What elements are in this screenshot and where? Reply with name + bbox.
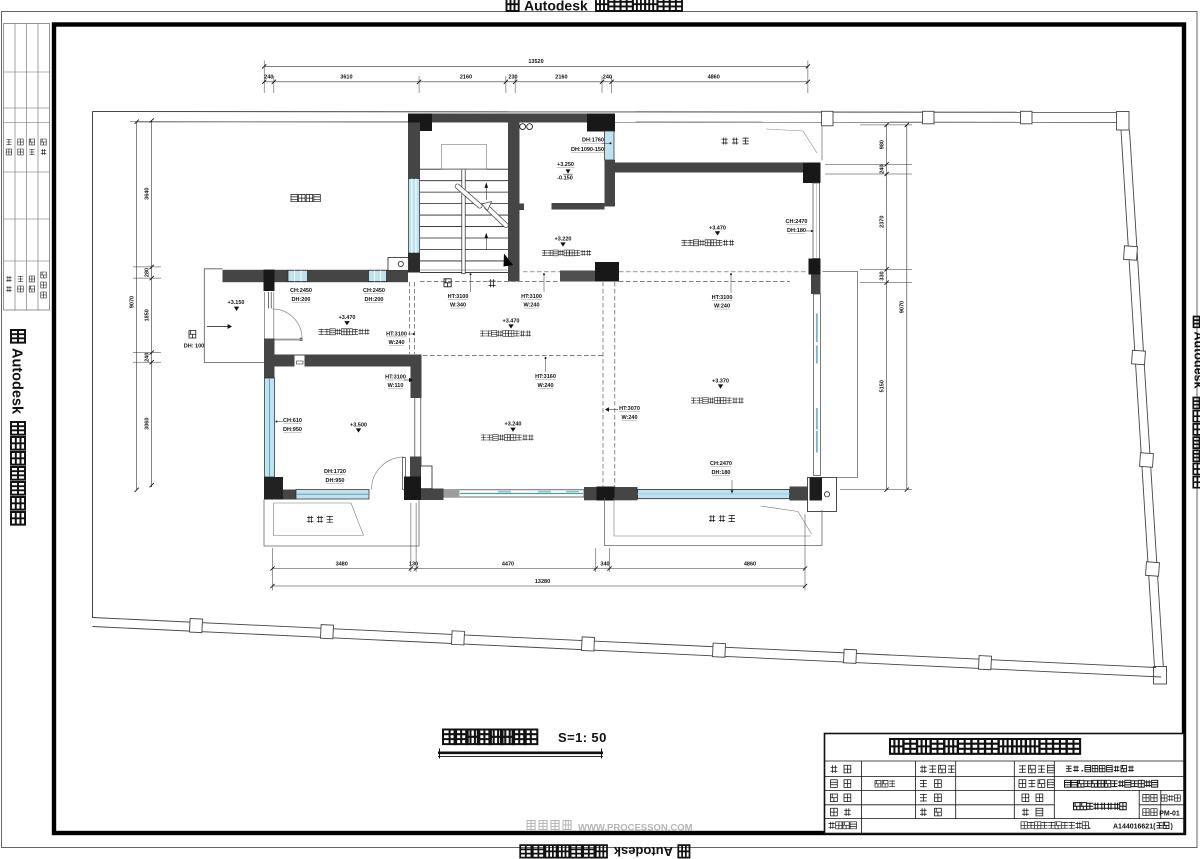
svg-text:DH: 100: DH: 100 xyxy=(184,343,204,349)
svg-text:W:240: W:240 xyxy=(537,383,553,389)
svg-text:240: 240 xyxy=(603,74,612,80)
svg-text:4860: 4860 xyxy=(744,562,756,568)
svg-text:DH:200: DH:200 xyxy=(365,297,384,303)
svg-text:Autodesk: Autodesk xyxy=(524,0,588,14)
svg-text:W:240: W:240 xyxy=(621,415,637,421)
svg-text:13280: 13280 xyxy=(535,579,550,585)
svg-text:CH:2470: CH:2470 xyxy=(710,461,732,467)
svg-text:+3.220: +3.220 xyxy=(555,237,572,243)
svg-text:2160: 2160 xyxy=(555,74,567,80)
svg-text:W:240: W:240 xyxy=(388,340,404,346)
svg-text:2370: 2370 xyxy=(879,216,885,228)
svg-text:HT:3100: HT:3100 xyxy=(385,374,406,380)
svg-text:340: 340 xyxy=(600,562,609,568)
svg-text:HT:3100: HT:3100 xyxy=(712,295,733,301)
svg-text:1850: 1850 xyxy=(145,309,151,321)
svg-text:9070: 9070 xyxy=(900,301,906,313)
svg-text:3060: 3060 xyxy=(145,418,151,430)
svg-text:4860: 4860 xyxy=(708,74,720,80)
svg-text:CH:2470: CH:2470 xyxy=(785,219,807,225)
svg-text:HT:3070: HT:3070 xyxy=(619,406,640,412)
svg-text:+3.470: +3.470 xyxy=(339,315,356,321)
svg-text:280: 280 xyxy=(145,268,151,277)
svg-text:PM-01: PM-01 xyxy=(1159,810,1180,817)
svg-text:DH:1720: DH:1720 xyxy=(324,469,346,475)
svg-text:DH:950: DH:950 xyxy=(326,478,345,484)
svg-text:HT:3100: HT:3100 xyxy=(448,294,469,300)
svg-text:HT:3160: HT:3160 xyxy=(535,374,556,380)
svg-text:3640: 3640 xyxy=(145,188,151,200)
svg-text:+3.250: +3.250 xyxy=(557,162,574,168)
svg-text:W:240: W:240 xyxy=(523,303,539,309)
svg-text:3610: 3610 xyxy=(340,74,352,80)
svg-text:9070: 9070 xyxy=(130,296,136,308)
svg-text:240: 240 xyxy=(879,165,885,174)
svg-text:3480: 3480 xyxy=(336,562,348,568)
svg-text:+3.470: +3.470 xyxy=(709,225,726,231)
svg-text:240: 240 xyxy=(264,74,273,80)
svg-text:HT:3100: HT:3100 xyxy=(386,331,407,337)
svg-text:CH:2450: CH:2450 xyxy=(363,288,385,294)
svg-text:+3.470: +3.470 xyxy=(503,318,520,324)
svg-text:DH:1090-150: DH:1090-150 xyxy=(571,147,604,153)
svg-text:330: 330 xyxy=(879,271,885,280)
svg-text:Autodesk: Autodesk xyxy=(613,844,673,859)
svg-text:DH:180: DH:180 xyxy=(712,470,731,476)
svg-text:CH:610: CH:610 xyxy=(283,418,302,424)
svg-text:W:110: W:110 xyxy=(388,383,404,389)
svg-text:130: 130 xyxy=(409,562,418,568)
svg-text:WWW.PROCESSON.COM: WWW.PROCESSON.COM xyxy=(578,823,693,834)
svg-text:980: 980 xyxy=(879,140,885,149)
svg-text:): ) xyxy=(1171,823,1173,830)
svg-text:2160: 2160 xyxy=(460,74,472,80)
svg-text:Autodesk: Autodesk xyxy=(9,348,25,415)
svg-text:DH:180: DH:180 xyxy=(787,228,806,234)
svg-text:-0.150: -0.150 xyxy=(557,175,573,181)
svg-text:+3.370: +3.370 xyxy=(712,378,729,384)
svg-text:230: 230 xyxy=(508,74,517,80)
svg-text:A144016621(: A144016621( xyxy=(1113,823,1156,830)
svg-text:+3.240: +3.240 xyxy=(505,422,522,428)
svg-text:DH:1760: DH:1760 xyxy=(582,138,604,144)
svg-text:W:240: W:240 xyxy=(714,304,730,310)
svg-text:240: 240 xyxy=(145,353,151,362)
svg-text:CH:2450: CH:2450 xyxy=(290,288,312,294)
svg-text:S=1: 50: S=1: 50 xyxy=(558,730,607,745)
svg-text:DH:950: DH:950 xyxy=(283,427,302,433)
svg-text:HT:3100: HT:3100 xyxy=(521,294,542,300)
svg-text:4470: 4470 xyxy=(502,562,514,568)
svg-text:W:340: W:340 xyxy=(450,303,466,309)
svg-text:+3.150: +3.150 xyxy=(228,300,245,306)
svg-text:5150: 5150 xyxy=(879,380,885,392)
svg-text:Autodesk: Autodesk xyxy=(1192,332,1200,389)
svg-text:DH:200: DH:200 xyxy=(292,297,311,303)
svg-text:+3.500: +3.500 xyxy=(350,422,367,428)
svg-text:13520: 13520 xyxy=(528,59,543,65)
